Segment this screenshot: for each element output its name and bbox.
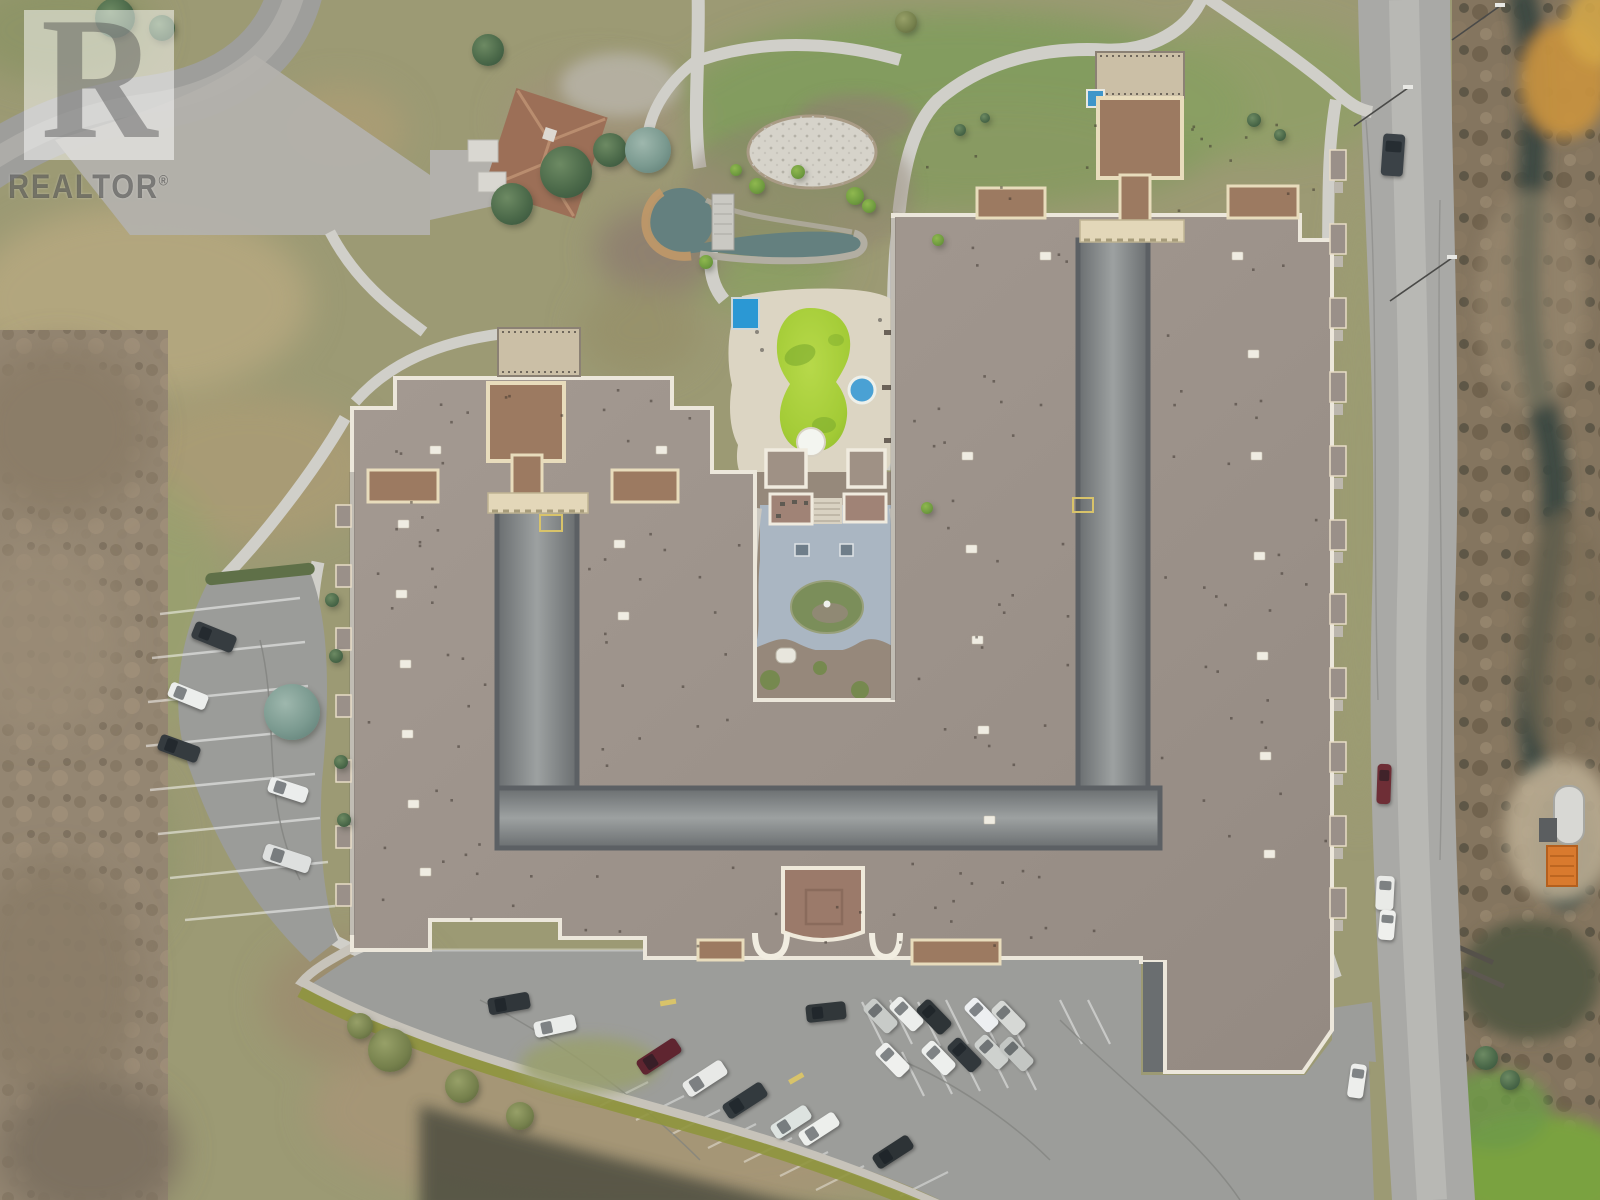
- realtor-logo-r: R: [41, 10, 157, 160]
- planter: [840, 544, 853, 556]
- fountain: [824, 601, 831, 608]
- rooftop-patio-west: [498, 328, 580, 376]
- east-courtyard: [1078, 240, 1148, 788]
- rooftop-patio-east: [1096, 52, 1184, 98]
- parking-pad: [468, 140, 498, 162]
- gazebo: [844, 494, 886, 522]
- left-tree-band: [0, 330, 180, 1200]
- aerial-scene: [0, 0, 1600, 1200]
- realtor-watermark: R REALTOR®: [8, 10, 194, 207]
- entrance-portico: [783, 868, 863, 940]
- bench: [882, 385, 891, 390]
- parking-pad: [478, 172, 506, 192]
- storage-tank: [1554, 786, 1584, 844]
- west-tower-roof: [488, 383, 564, 461]
- dome-skylight: [776, 648, 796, 663]
- east-tower-roof: [1098, 98, 1182, 178]
- gazebo: [770, 494, 812, 524]
- courtyard-steps: [812, 498, 842, 524]
- hot-tub: [849, 377, 875, 403]
- foot-bridge: [712, 194, 734, 250]
- south-courtyard: [497, 788, 1160, 848]
- shade-canopy: [732, 298, 759, 329]
- gazebo: [766, 450, 806, 487]
- gazebo: [848, 450, 885, 487]
- planter: [795, 544, 809, 556]
- garage-ramp: [1143, 962, 1163, 1072]
- realtor-watermark-text: REALTOR®: [8, 168, 168, 207]
- shed: [1539, 818, 1557, 842]
- aerial-photo: R REALTOR®: [0, 0, 1600, 1200]
- realtor-logo-box: R: [24, 10, 174, 160]
